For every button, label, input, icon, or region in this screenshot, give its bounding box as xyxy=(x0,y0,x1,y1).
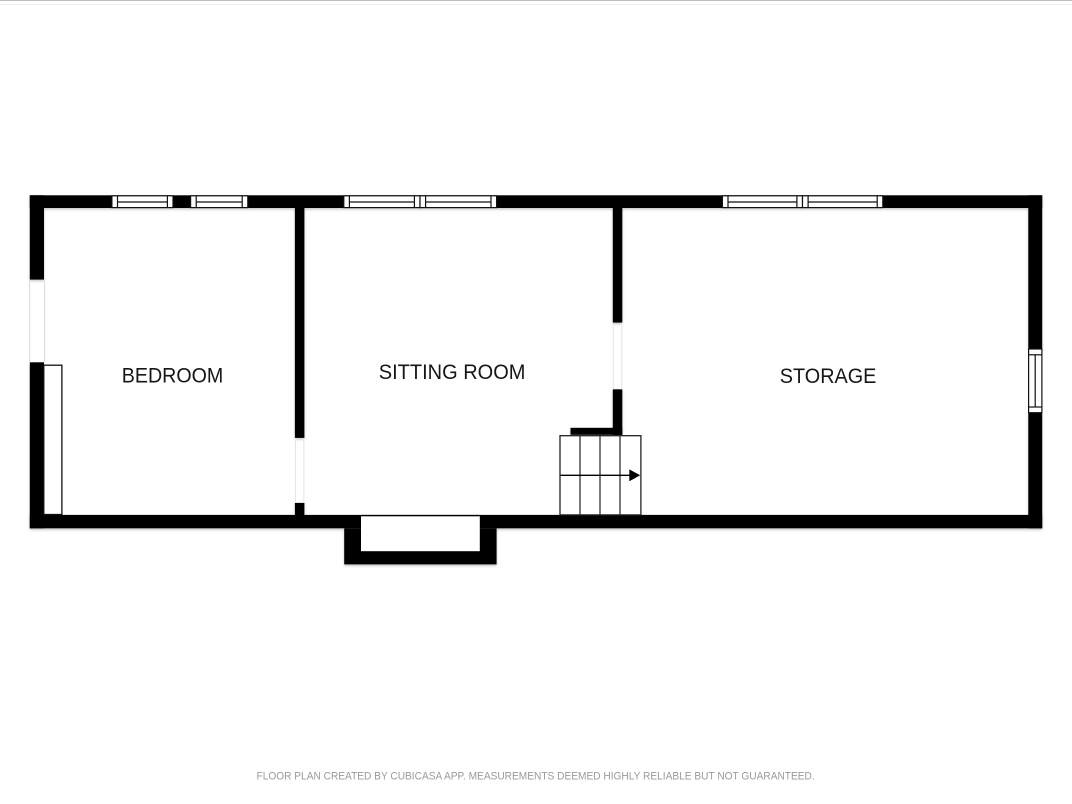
svg-text:BEDROOM: BEDROOM xyxy=(122,363,224,387)
svg-text:STORAGE: STORAGE xyxy=(780,365,877,388)
svg-text:SITTING ROOM: SITTING ROOM xyxy=(379,361,526,384)
svg-text:FLOOR PLAN CREATED BY CUBICASA: FLOOR PLAN CREATED BY CUBICASA APP. MEAS… xyxy=(257,770,815,782)
